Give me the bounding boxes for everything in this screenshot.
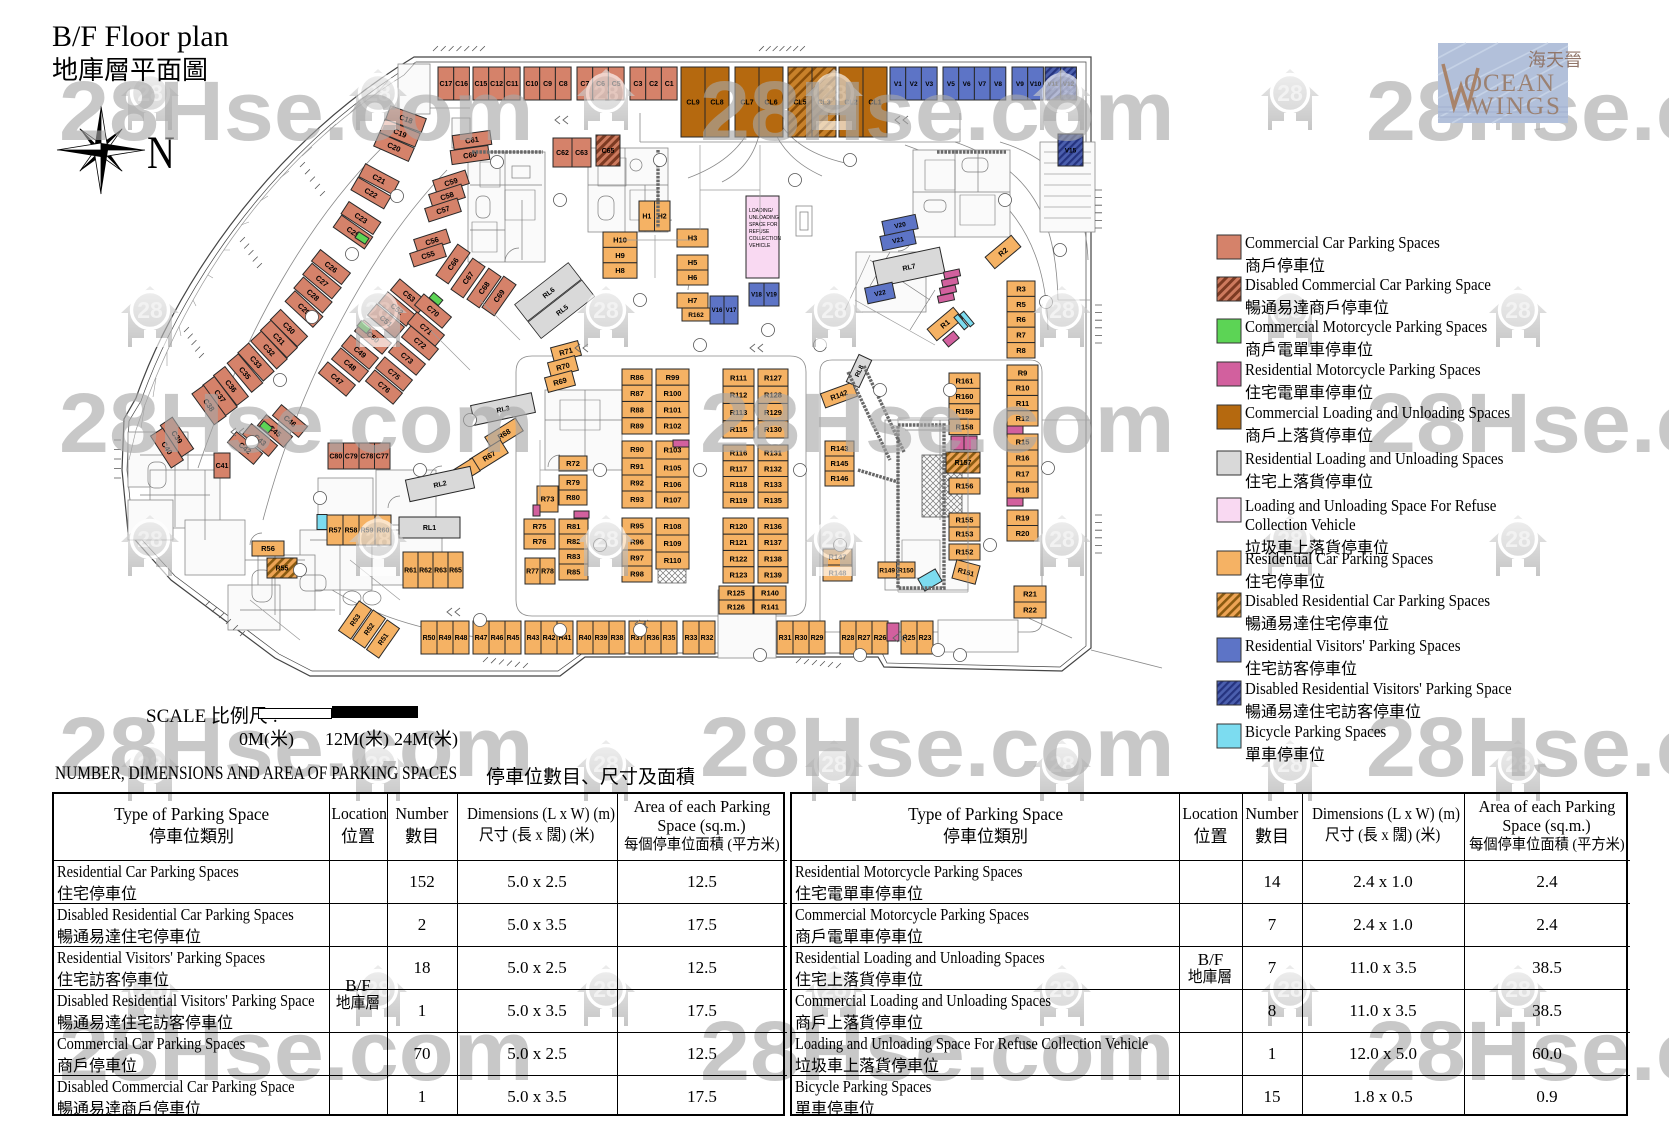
svg-text:C63: C63 xyxy=(575,150,588,157)
svg-text:R121: R121 xyxy=(730,538,748,547)
svg-text:R46: R46 xyxy=(491,635,504,642)
svg-text:R23: R23 xyxy=(919,635,932,642)
svg-text:V16: V16 xyxy=(712,308,723,314)
svg-text:R78: R78 xyxy=(541,569,554,576)
svg-text:R81: R81 xyxy=(567,522,581,531)
svg-text:R8: R8 xyxy=(1016,346,1026,355)
svg-text:R102: R102 xyxy=(664,422,682,431)
svg-text:R108: R108 xyxy=(664,522,682,531)
svg-text:R141: R141 xyxy=(761,603,779,612)
svg-text:R123: R123 xyxy=(730,571,748,580)
svg-text:R72: R72 xyxy=(566,459,580,468)
svg-text:R36: R36 xyxy=(647,635,660,642)
svg-text:R155: R155 xyxy=(956,516,974,525)
svg-text:28Hse.com: 28Hse.com xyxy=(59,377,534,471)
svg-text:R107: R107 xyxy=(664,496,682,505)
svg-text:R133: R133 xyxy=(764,480,782,489)
svg-text:R100: R100 xyxy=(664,389,682,398)
svg-text:R33: R33 xyxy=(685,635,698,642)
svg-text:R90: R90 xyxy=(630,445,644,454)
svg-text:R31: R31 xyxy=(779,635,792,642)
svg-text:R19: R19 xyxy=(1016,514,1030,523)
svg-text:R95: R95 xyxy=(630,522,644,531)
svg-text:V17: V17 xyxy=(726,308,737,314)
svg-text:H8: H8 xyxy=(615,266,625,275)
svg-text:C62: C62 xyxy=(556,150,569,157)
svg-text:R65: R65 xyxy=(449,568,462,575)
svg-text:R120: R120 xyxy=(730,522,748,531)
svg-text:R153: R153 xyxy=(956,530,974,539)
svg-text:R119: R119 xyxy=(730,496,748,505)
svg-text:R58: R58 xyxy=(345,528,358,535)
svg-text:R122: R122 xyxy=(730,554,748,563)
svg-text:R140: R140 xyxy=(761,589,779,598)
svg-text:R137: R137 xyxy=(764,538,782,547)
svg-text:R96: R96 xyxy=(630,538,644,547)
svg-text:R138: R138 xyxy=(764,554,782,563)
svg-text:R40: R40 xyxy=(579,635,592,642)
svg-text:R118: R118 xyxy=(730,480,748,489)
svg-text:R85: R85 xyxy=(567,568,581,577)
svg-text:LOADING/: LOADING/ xyxy=(749,208,774,214)
svg-text:R97: R97 xyxy=(630,554,644,563)
svg-text:R149: R149 xyxy=(879,567,895,574)
svg-text:R3: R3 xyxy=(1016,284,1026,293)
svg-text:R136: R136 xyxy=(764,522,782,531)
svg-text:C2: C2 xyxy=(649,81,658,88)
svg-text:REFUSE: REFUSE xyxy=(749,229,770,235)
svg-text:R32: R32 xyxy=(701,635,714,642)
svg-text:UNLOADING: UNLOADING xyxy=(749,215,779,221)
svg-text:R20: R20 xyxy=(1016,529,1030,538)
svg-text:R43: R43 xyxy=(527,635,540,642)
svg-text:R61: R61 xyxy=(404,568,417,575)
svg-text:R105: R105 xyxy=(664,464,682,473)
svg-text:R135: R135 xyxy=(764,496,782,505)
svg-text:R50: R50 xyxy=(423,635,436,642)
svg-text:R38: R38 xyxy=(611,635,624,642)
svg-text:R75: R75 xyxy=(533,522,547,531)
svg-text:H9: H9 xyxy=(615,251,625,260)
svg-text:R156: R156 xyxy=(956,482,974,491)
svg-text:R49: R49 xyxy=(439,635,452,642)
svg-text:R125: R125 xyxy=(727,589,745,598)
svg-text:C8: C8 xyxy=(559,81,568,88)
svg-text:H6: H6 xyxy=(688,273,698,282)
svg-text:C65: C65 xyxy=(602,148,615,155)
svg-text:R17: R17 xyxy=(1016,470,1030,479)
svg-text:R101: R101 xyxy=(664,405,682,414)
svg-text:SPACE FOR: SPACE FOR xyxy=(749,222,778,228)
svg-text:R80: R80 xyxy=(566,493,580,502)
svg-text:R22: R22 xyxy=(1023,606,1037,615)
svg-text:C1: C1 xyxy=(665,81,674,88)
svg-text:R45: R45 xyxy=(507,635,520,642)
svg-text:V18: V18 xyxy=(751,293,762,299)
svg-text:H5: H5 xyxy=(688,258,698,267)
svg-text:R55: R55 xyxy=(276,566,289,573)
svg-text:H1: H1 xyxy=(642,214,651,221)
svg-text:R77: R77 xyxy=(526,569,539,576)
svg-text:R56: R56 xyxy=(261,544,275,553)
svg-text:R98: R98 xyxy=(630,570,644,579)
svg-text:R150: R150 xyxy=(898,567,914,574)
svg-text:R7: R7 xyxy=(1016,331,1026,340)
svg-text:CL9: CL9 xyxy=(686,100,699,107)
svg-text:R92: R92 xyxy=(630,479,644,488)
svg-text:R63: R63 xyxy=(434,568,447,575)
svg-text:R99: R99 xyxy=(666,373,680,382)
svg-text:R146: R146 xyxy=(831,474,849,483)
svg-text:R5: R5 xyxy=(1016,300,1026,309)
svg-text:R73: R73 xyxy=(541,495,555,504)
svg-text:C3: C3 xyxy=(633,81,642,88)
svg-text:V19: V19 xyxy=(766,293,777,299)
svg-text:R83: R83 xyxy=(567,552,581,561)
svg-text:R162: R162 xyxy=(688,312,704,319)
svg-text:R87: R87 xyxy=(630,389,644,398)
svg-text:R29: R29 xyxy=(811,635,824,642)
svg-text:COLLECTION: COLLECTION xyxy=(749,236,781,242)
svg-text:28Hse.com: 28Hse.com xyxy=(700,701,1175,795)
svg-text:R27: R27 xyxy=(858,635,871,642)
svg-text:R48: R48 xyxy=(455,635,468,642)
svg-text:R109: R109 xyxy=(664,539,682,548)
svg-text:R88: R88 xyxy=(630,405,644,414)
svg-text:R106: R106 xyxy=(664,480,682,489)
svg-text:R79: R79 xyxy=(566,478,580,487)
svg-text:28Hse.com: 28Hse.com xyxy=(700,65,1175,159)
svg-text:RL1: RL1 xyxy=(423,525,436,532)
svg-text:R110: R110 xyxy=(664,556,682,565)
svg-text:R21: R21 xyxy=(1023,590,1037,599)
svg-text:R57: R57 xyxy=(329,528,342,535)
svg-text:R42: R42 xyxy=(543,635,556,642)
svg-text:R30: R30 xyxy=(795,635,808,642)
svg-text:R76: R76 xyxy=(533,537,547,546)
svg-text:C9: C9 xyxy=(543,81,552,88)
svg-text:R91: R91 xyxy=(630,462,644,471)
svg-text:R93: R93 xyxy=(630,495,644,504)
svg-text:WINGS: WINGS xyxy=(1470,93,1562,120)
svg-text:R28: R28 xyxy=(842,635,855,642)
svg-text:VEHICLE: VEHICLE xyxy=(749,243,771,249)
svg-text:28Hse.com: 28Hse.com xyxy=(700,377,1175,471)
svg-text:R26: R26 xyxy=(874,635,887,642)
svg-text:R6: R6 xyxy=(1016,315,1026,324)
svg-text:海天晉: 海天晉 xyxy=(1528,50,1582,70)
svg-text:R89: R89 xyxy=(630,422,644,431)
svg-text:R126: R126 xyxy=(727,603,745,612)
svg-text:R35: R35 xyxy=(663,635,676,642)
svg-text:R62: R62 xyxy=(419,568,432,575)
svg-text:R86: R86 xyxy=(630,373,644,382)
svg-text:R18: R18 xyxy=(1016,486,1030,495)
svg-text:R139: R139 xyxy=(764,571,782,580)
svg-text:R39: R39 xyxy=(595,635,608,642)
svg-text:H7: H7 xyxy=(688,296,698,305)
svg-text:H3: H3 xyxy=(688,234,698,243)
svg-text:R152: R152 xyxy=(956,548,974,557)
svg-text:R47: R47 xyxy=(475,635,488,642)
